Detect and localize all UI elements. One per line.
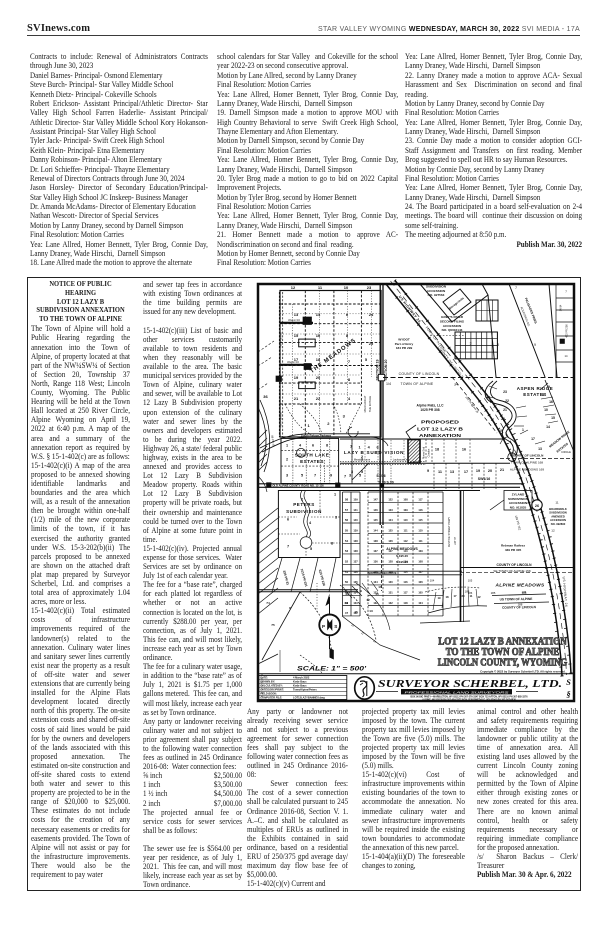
svg-text:185: 185	[491, 591, 496, 595]
svg-text:1025 PR 308: 1025 PR 308	[420, 408, 439, 412]
svg-text:4: 4	[368, 446, 371, 450]
svg-text:Copyright © 2022 by Surveyor S: Copyright © 2022 by Surveyor Scherbel LT…	[480, 669, 566, 673]
svg-text:137: 137	[353, 559, 358, 563]
svg-text:439 PR 305: 439 PR 305	[505, 548, 522, 552]
svg-text:PROFESSIONAL LAND SURVEYORS: PROFESSIONAL LAND SURVEYORS	[405, 690, 509, 694]
svg-text:1: 1	[307, 423, 310, 428]
svg-text:186: 186	[522, 590, 527, 594]
svg-text:138: 138	[353, 539, 358, 543]
svg-text:186: 186	[468, 591, 473, 595]
svg-text:2: 2	[361, 458, 363, 462]
svg-text:139: 139	[353, 528, 358, 532]
svg-text:SCALE: 1" = 500': SCALE: 1" = 500'	[297, 666, 367, 673]
svg-text:2: 2	[286, 458, 288, 462]
svg-text:GREY'S RIVER: GREY'S RIVER	[441, 315, 464, 319]
svg-text:623 PR 236: 623 PR 236	[318, 569, 326, 587]
svg-text:S1/16: S1/16	[376, 474, 385, 478]
svg-text:SURVEYOR SCHERBEL, LTD.: SURVEYOR SCHERBEL, LTD.	[378, 678, 562, 690]
svg-text:20: 20	[316, 375, 321, 380]
svg-text:137: 137	[373, 549, 378, 553]
svg-text:NO. 992890: NO. 992890	[551, 522, 566, 526]
svg-text:19: 19	[294, 375, 299, 380]
svg-text:8: 8	[346, 333, 349, 338]
svg-text:20: 20	[488, 469, 492, 473]
svg-text:Rebman Ratfeez: Rebman Ratfeez	[501, 544, 526, 548]
svg-text:MANCARD AT: MANCARD AT	[363, 395, 367, 412]
svg-text:Wagon Rd: Wagon Rd	[287, 361, 299, 364]
svg-text:44: 44	[344, 601, 348, 605]
svg-text:7: 7	[515, 286, 517, 290]
svg-text:8: 8	[542, 393, 544, 397]
svg-text:Twin Fairway: Twin Fairway	[278, 332, 282, 348]
svg-text:21: 21	[500, 468, 504, 472]
svg-text:147: 147	[373, 498, 378, 502]
svg-text:12: 12	[477, 595, 481, 599]
svg-text:115: 115	[418, 518, 423, 522]
svg-text:6: 6	[376, 446, 378, 450]
svg-text:S: S	[334, 624, 337, 629]
svg-text:2: 2	[301, 498, 303, 502]
svg-text:Alpine Flats, LLC: Alpine Flats, LLC	[417, 404, 445, 408]
svg-text:PROPOSED: PROPOSED	[421, 420, 460, 425]
svg-text:ALPINE MEADOWS: ALPINE MEADOWS	[386, 547, 418, 551]
svg-text:21: 21	[503, 408, 507, 412]
svg-text:Rivers End: Rivers End	[423, 446, 426, 459]
svg-text:ANNEXATION: ANNEXATION	[419, 433, 462, 438]
svg-text:THE ROYALE: THE ROYALE	[368, 396, 372, 413]
svg-text:BOARDWALK: BOARDWALK	[549, 507, 567, 511]
svg-text:4: 4	[348, 396, 351, 401]
svg-text:189 PR 762: 189 PR 762	[514, 515, 522, 531]
svg-text:5: 5	[301, 474, 303, 478]
svg-text:53: 53	[345, 549, 349, 553]
svg-text:14: 14	[546, 425, 550, 429]
svg-text:105: 105	[418, 590, 423, 594]
svg-text:COUNTY OF LINCOLN: COUNTY OF LINCOLN	[399, 372, 440, 376]
svg-text:128: 128	[388, 559, 393, 563]
svg-text:1/4: 1/4	[386, 382, 391, 386]
svg-text:§: §	[566, 690, 570, 699]
svg-text:108: 108	[418, 559, 423, 563]
svg-text:24: 24	[369, 312, 374, 317]
svg-text:US TOWN OF ALPINE: US TOWN OF ALPINE	[500, 597, 533, 602]
svg-text:19: 19	[476, 469, 480, 473]
svg-text:16: 16	[549, 400, 553, 404]
svg-text:AMENDED: AMENDED	[551, 514, 565, 518]
svg-text:116: 116	[418, 508, 423, 512]
svg-text:111: 111	[418, 539, 423, 543]
svg-text:17: 17	[453, 594, 457, 598]
svg-text:S.195.30: S.195.30	[396, 560, 408, 564]
svg-text:ACCESSION: ACCESSION	[550, 518, 566, 522]
svg-text:6: 6	[312, 444, 314, 448]
svg-text:DATE:: DATE:	[260, 676, 268, 680]
svg-text:16: 16	[378, 585, 382, 589]
svg-text:BOX 96 BIG PINEY—MARBLETON, WY: BOX 96 BIG PINEY—MARBLETON, WY 83113 PH …	[410, 695, 528, 698]
svg-text:138: 138	[353, 549, 358, 553]
svg-text:7: 7	[565, 290, 567, 294]
svg-text:47: 47	[345, 611, 349, 615]
svg-text:NO. 911835: NO. 911835	[510, 506, 527, 510]
svg-text:26: 26	[535, 504, 539, 508]
svg-text:3: 3	[343, 414, 346, 419]
svg-text:19: 19	[437, 596, 441, 600]
svg-text:130: 130	[388, 580, 393, 584]
svg-text:4 March 2022: 4 March 2022	[293, 676, 310, 680]
svg-text:133: 133	[353, 601, 358, 605]
svg-text:15: 15	[551, 416, 555, 420]
svg-text:COUNTY OF LINCOLN: COUNTY OF LINCOLN	[511, 454, 545, 458]
svg-text:13: 13	[294, 312, 299, 317]
svg-text:14: 14	[565, 354, 568, 358]
svg-text:South Refuge Parkway: South Refuge Parkway	[301, 433, 332, 437]
svg-text:15: 15	[294, 333, 299, 338]
svg-text:124: 124	[388, 518, 393, 522]
svg-text:125: 125	[388, 528, 393, 532]
svg-text:141: 141	[353, 508, 358, 512]
svg-text:108: 108	[403, 498, 408, 502]
svg-text:1: 1	[286, 444, 288, 448]
svg-text:SUBDIVISION: SUBDIVISION	[286, 509, 322, 514]
svg-text:16: 16	[462, 448, 466, 452]
svg-text:17: 17	[464, 470, 468, 474]
svg-text:140: 140	[353, 518, 358, 522]
svg-text:COUNTY OF LINCOLN: COUNTY OF LINCOLN	[502, 605, 537, 610]
svg-text:SV 84: SV 84	[560, 304, 563, 311]
svg-text:16: 16	[316, 333, 321, 338]
svg-text:11: 11	[438, 470, 442, 474]
svg-text:ALPINE MEADOWS: ALPINE MEADOWS	[494, 583, 545, 588]
svg-text:11: 11	[555, 501, 558, 505]
svg-text:122: 122	[388, 498, 393, 502]
svg-text:LINCOLN COUNTY, WYOMING: LINCOLN COUNTY, WYOMING	[438, 656, 568, 668]
svg-text:107: 107	[418, 570, 423, 574]
svg-text:SW1/16: SW1/16	[478, 477, 491, 481]
svg-text:146: 146	[373, 508, 378, 512]
svg-text:54: 54	[345, 539, 349, 543]
svg-text:S.195.20: S.195.20	[396, 554, 408, 558]
svg-text:CIRCLE: CIRCLE	[561, 450, 571, 454]
svg-text:9: 9	[360, 589, 362, 593]
svg-text:116: 116	[403, 580, 408, 584]
svg-text:112: 112	[403, 539, 408, 543]
svg-text:159: 159	[353, 498, 358, 502]
svg-text:2: 2	[327, 421, 330, 426]
svg-text:145: 145	[373, 518, 378, 522]
svg-text:12: 12	[291, 285, 296, 290]
svg-text:18: 18	[445, 595, 449, 599]
svg-text:117: 117	[403, 590, 408, 594]
svg-text:24: 24	[454, 383, 458, 387]
svg-text:FESTIVE STREET PKWY: FESTIVE STREET PKWY	[447, 517, 451, 547]
svg-text:110: 110	[403, 518, 408, 522]
svg-text:PETERS: PETERS	[293, 502, 315, 507]
svg-text:5: 5	[310, 547, 312, 551]
svg-text:SE TOWN OF ALPINE 158: SE TOWN OF ALPINE 158	[493, 569, 530, 573]
svg-text:4: 4	[309, 521, 312, 525]
svg-text:P: P	[322, 624, 325, 629]
svg-text:109: 109	[418, 549, 423, 553]
svg-text:1: 1	[522, 428, 524, 432]
svg-text:SECOND FILING: SECOND FILING	[440, 319, 465, 323]
svg-text:36: 36	[263, 394, 268, 399]
svg-text:LOT12LAZYBANNEX.dwg: LOT12LAZYBANNEX.dwg	[293, 696, 325, 700]
svg-text:335 PR 81: 335 PR 81	[282, 570, 290, 586]
svg-text:ALPINE MEADOWS 169: ALPINE MEADOWS 169	[510, 468, 544, 472]
svg-text:3: 3	[335, 516, 337, 520]
svg-text:13: 13	[450, 470, 454, 474]
svg-text:104: 104	[418, 601, 423, 605]
svg-text:SOUTH LAKE: SOUTH LAKE	[295, 453, 329, 458]
svg-text:19: 19	[499, 429, 503, 433]
svg-text:25: 25	[369, 341, 374, 346]
svg-text:75: 75	[271, 623, 275, 627]
svg-text:51: 51	[345, 570, 349, 574]
svg-text:126: 126	[388, 539, 393, 543]
svg-text:135: 135	[353, 580, 358, 584]
svg-text:FIELD BOOK:: FIELD BOOK:	[260, 692, 277, 696]
svg-text:WINTERGREEN DRIVE: WINTERGREEN DRIVE	[367, 571, 396, 575]
svg-text:1: 1	[334, 493, 336, 497]
svg-text:15: 15	[375, 592, 379, 596]
svg-text:COUNTY OF LINCOLN: COUNTY OF LINCOLN	[497, 563, 533, 567]
svg-text:52: 52	[345, 559, 349, 563]
svg-text:8: 8	[326, 444, 328, 448]
svg-text:184 PR 299: 184 PR 299	[396, 346, 413, 350]
svg-text:ESTATES: ESTATES	[300, 459, 324, 464]
svg-text:110: 110	[418, 528, 423, 532]
svg-text:ZYLAND: ZYLAND	[512, 492, 525, 496]
svg-text:23: 23	[367, 285, 372, 290]
svg-text:3: 3	[286, 474, 288, 478]
svg-text:1019 PR 631: 1019 PR 631	[300, 568, 309, 587]
svg-text:8: 8	[348, 377, 351, 382]
svg-text:134: 134	[373, 580, 378, 584]
svg-text:TOWN OF ALPINE: TOWN OF ALPINE	[401, 382, 434, 386]
svg-text:136: 136	[373, 559, 378, 563]
svg-text:20: 20	[501, 417, 505, 421]
svg-text:45: 45	[354, 610, 358, 614]
svg-text:TOWN OF ALPINE 168: TOWN OF ALPINE 168	[511, 461, 544, 465]
svg-text:14: 14	[372, 639, 377, 644]
svg-text:132: 132	[388, 601, 393, 605]
svg-text:11: 11	[318, 285, 323, 290]
svg-text:10: 10	[344, 285, 349, 290]
svg-text:13: 13	[538, 447, 542, 451]
svg-text:7: 7	[287, 545, 289, 549]
svg-text:111: 111	[403, 528, 408, 532]
svg-text:8: 8	[289, 606, 291, 610]
svg-text:ACCESSION: ACCESSION	[509, 501, 528, 505]
svg-text:ALPINE, WY 83128 PH 307-654-75: ALPINE, WY 83128 PH 307-654-7577 BOX 132…	[422, 698, 516, 701]
svg-text:CATEGORY/PRINT:: CATEGORY/PRINT:	[260, 688, 284, 692]
svg-text:Twin Fairway: Twin Fairway	[278, 412, 282, 428]
svg-text:ACCESSION: ACCESSION	[443, 324, 462, 328]
svg-text:7: 7	[314, 474, 316, 478]
svg-text:8: 8	[331, 542, 333, 546]
svg-text:3: 3	[349, 474, 351, 478]
svg-text:138: 138	[373, 539, 378, 543]
svg-text:74: 74	[266, 601, 270, 605]
svg-text:14: 14	[316, 312, 321, 317]
svg-text:106: 106	[418, 580, 423, 584]
svg-text:12: 12	[366, 598, 370, 602]
svg-text:Town/Alpine/Peters: Town/Alpine/Peters	[293, 688, 317, 692]
svg-text:COMPUTER FILE:: COMPUTER FILE:	[260, 696, 282, 700]
svg-text:SUBDIVISION: SUBDIVISION	[508, 497, 529, 501]
svg-text:SUBDIVISION: SUBDIVISION	[549, 511, 567, 515]
svg-text:18: 18	[435, 448, 439, 452]
svg-text:104: 104	[430, 579, 435, 583]
svg-text:123: 123	[388, 508, 393, 512]
svg-text:10: 10	[544, 408, 548, 412]
svg-text:9: 9	[534, 343, 536, 347]
svg-text:144: 144	[373, 528, 378, 532]
svg-text:131: 131	[388, 590, 393, 594]
svg-text:LAZY B SUBDIVISION: LAZY B SUBDIVISION	[344, 450, 404, 455]
svg-text:50: 50	[345, 580, 349, 584]
svg-text:Lackasus Dr: Lackasus Dr	[393, 458, 408, 462]
svg-text:115: 115	[403, 570, 408, 574]
svg-text:117: 117	[418, 498, 423, 502]
svg-text:Kode Baus: Kode Baus	[293, 680, 307, 684]
svg-text:OLD ALPINE COUNTY ROAD NO. 12-: OLD ALPINE COUNTY ROAD NO. 12-116	[272, 484, 324, 488]
svg-text:23: 23	[503, 390, 507, 394]
svg-text:5: 5	[359, 474, 361, 478]
svg-text:105: 105	[468, 579, 473, 583]
svg-text:43 PR 26: 43 PR 26	[470, 403, 480, 414]
svg-text:57: 57	[345, 508, 349, 512]
svg-text:Kode Baus: Kode Baus	[293, 684, 307, 688]
svg-text:118: 118	[403, 601, 408, 605]
svg-text:109: 109	[403, 508, 408, 512]
svg-text:58: 58	[345, 498, 349, 502]
svg-text:5: 5	[365, 357, 368, 362]
svg-text:CALCULATED BY:: CALCULATED BY:	[260, 684, 283, 688]
svg-text:Wagon Rd: Wagon Rd	[288, 319, 300, 322]
svg-text:21: 21	[294, 396, 299, 401]
svg-text:DRAWN BY:: DRAWN BY:	[260, 680, 275, 684]
svg-text:17: 17	[531, 437, 535, 441]
svg-text:LOT 97: LOT 97	[454, 536, 457, 545]
svg-text:7: 7	[348, 359, 351, 364]
svg-text:S: S	[566, 678, 571, 687]
svg-text:6: 6	[346, 312, 349, 317]
svg-text:12: 12	[551, 529, 555, 533]
svg-text:22: 22	[505, 399, 509, 403]
svg-text:Condos: Condos	[428, 448, 431, 457]
svg-text:6: 6	[287, 518, 289, 522]
svg-text:55: 55	[345, 528, 349, 532]
svg-text:9: 9	[427, 469, 429, 473]
svg-text:22: 22	[316, 396, 321, 401]
svg-text:423 PR 256: 423 PR 256	[566, 324, 569, 338]
svg-text:4: 4	[299, 444, 302, 448]
svg-text:1: 1	[358, 446, 360, 450]
svg-text:136: 136	[353, 570, 358, 574]
svg-text:56: 56	[345, 518, 349, 522]
svg-text:7: 7	[344, 475, 346, 479]
svg-text:LOT 12 LAZY B: LOT 12 LAZY B	[417, 426, 464, 431]
svg-text:9: 9	[330, 474, 332, 478]
svg-text:13: 13	[369, 609, 373, 613]
